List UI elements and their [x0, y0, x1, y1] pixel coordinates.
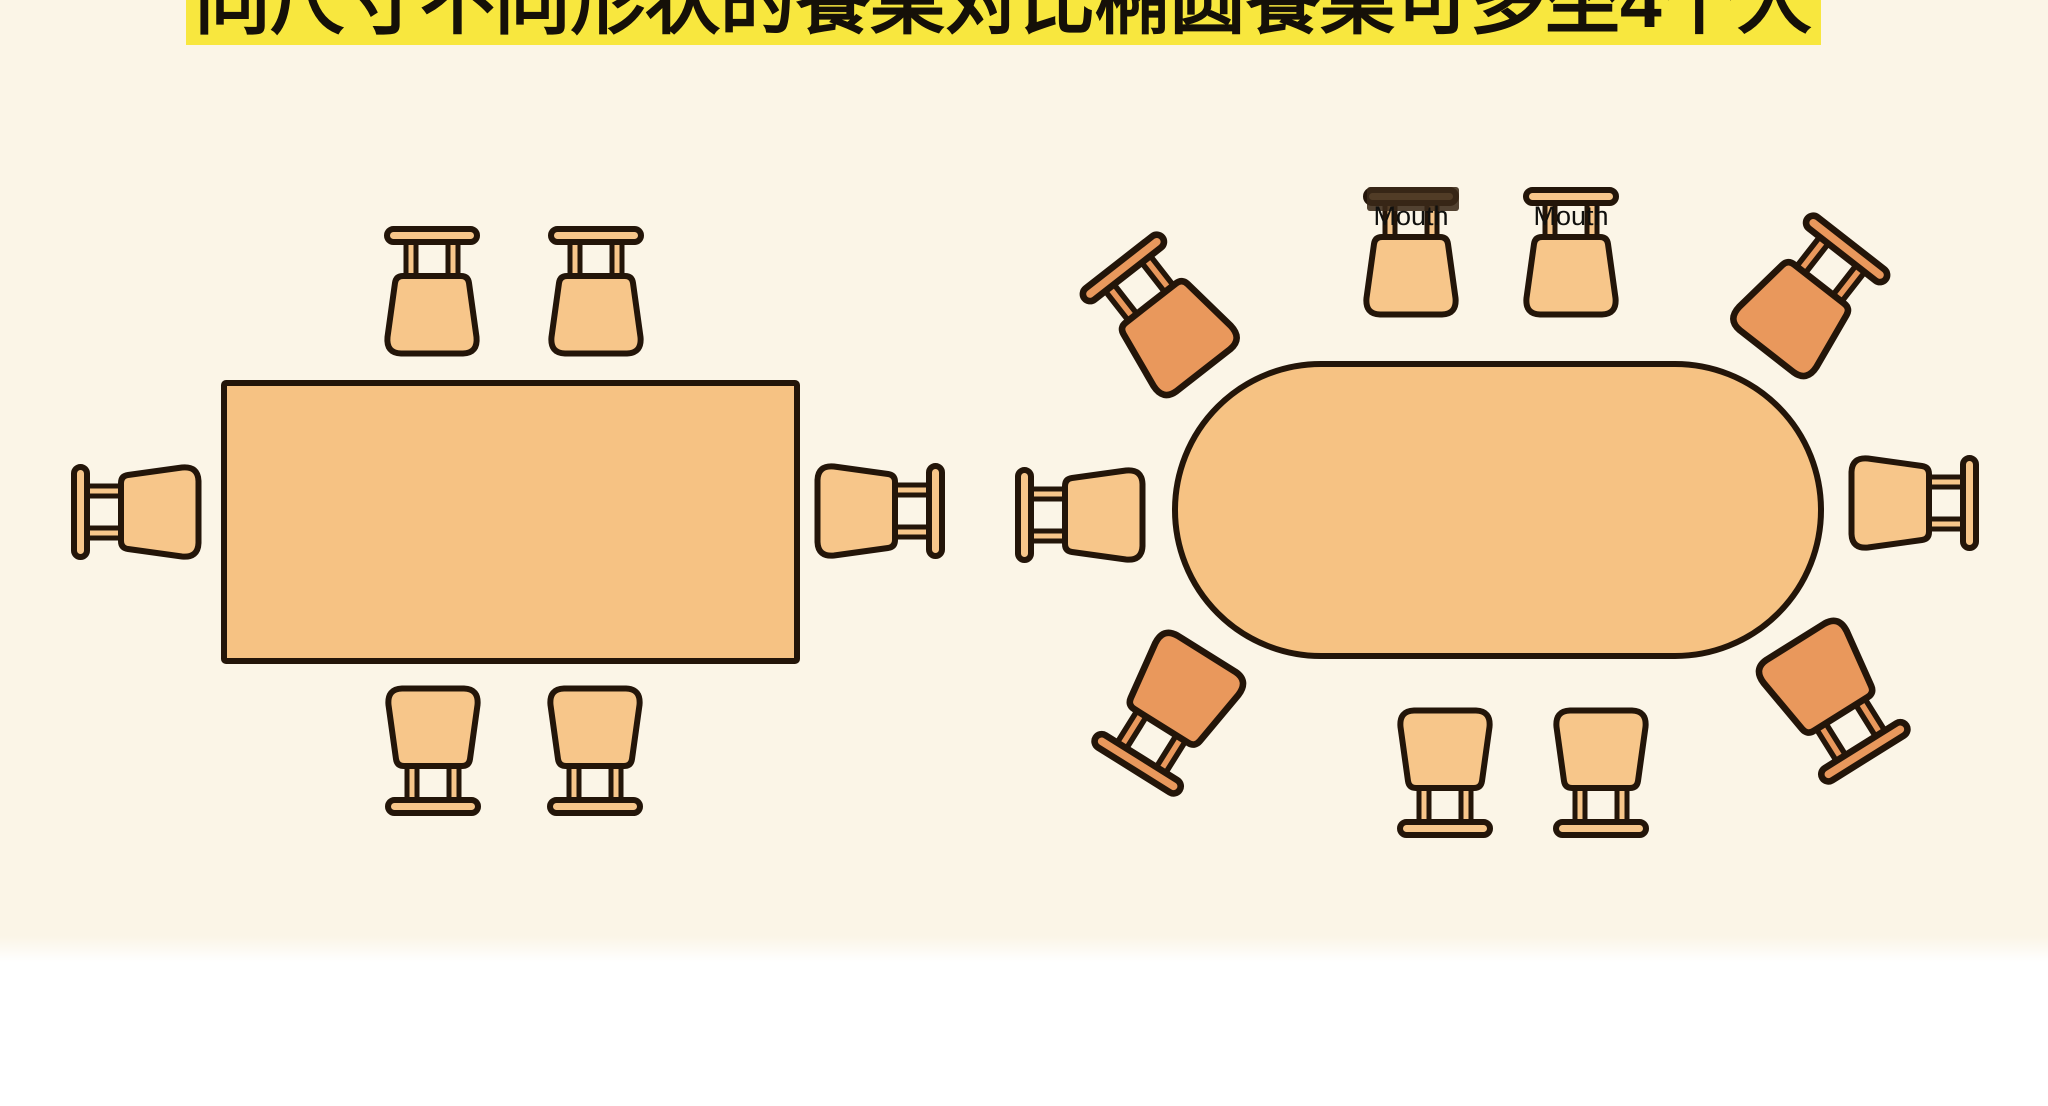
chair-icon: [1722, 207, 1896, 388]
oval-table-bottom-chair-1: [1396, 707, 1494, 839]
oval-table-left-chair: [1014, 466, 1146, 564]
oval-table-bottom-right-chair: [1748, 610, 1916, 790]
rect-table-left-chair: [70, 463, 202, 561]
title-row: 同尺寸不同形状的餐桌对比椭圆餐桌可多坐4个人: [186, 0, 1821, 45]
oval-table: [1172, 361, 1824, 659]
chair-icon: [546, 685, 644, 817]
page-bottom-edge: [0, 936, 2048, 1106]
chair-icon: [1396, 707, 1494, 839]
rect-table-top-chair-2: [547, 225, 645, 357]
rect-table-bottom-chair-2: [546, 685, 644, 817]
title-highlight: 同尺寸不同形状的餐桌对比椭圆餐桌可多坐4个人: [186, 0, 1821, 45]
rect-table-right-chair: [814, 462, 946, 560]
oval-table-top-left-chair: [1074, 226, 1248, 407]
chair-icon: [1014, 466, 1146, 564]
oval-table-right-chair: [1848, 454, 1980, 552]
chair-icon: [384, 685, 482, 817]
chair-icon: [547, 225, 645, 357]
chair-icon: [1552, 707, 1650, 839]
infographic-canvas: 同尺寸不同形状的餐桌对比椭圆餐桌可多坐4个人: [0, 0, 2048, 1106]
chair-icon: [1086, 622, 1254, 802]
chair-icon: [1074, 226, 1248, 407]
mouth-label-2: Mouth: [1511, 201, 1631, 232]
rect-table-top-chair-1: [383, 225, 481, 357]
mouth-label-1: Mouth: [1351, 201, 1471, 232]
chair-icon: [1848, 454, 1980, 552]
chair-icon: [1748, 610, 1916, 790]
chair-icon: [814, 462, 946, 560]
chair-icon: [383, 225, 481, 357]
oval-table-bottom-chair-2: [1552, 707, 1650, 839]
oval-table-bottom-left-chair: [1086, 622, 1254, 802]
oval-table-top-right-chair: [1722, 207, 1896, 388]
page-title: 同尺寸不同形状的餐桌对比椭圆餐桌可多坐4个人: [195, 0, 1812, 43]
chair-icon: [70, 463, 202, 561]
rectangular-table: [221, 380, 800, 664]
rect-table-bottom-chair-1: [384, 685, 482, 817]
